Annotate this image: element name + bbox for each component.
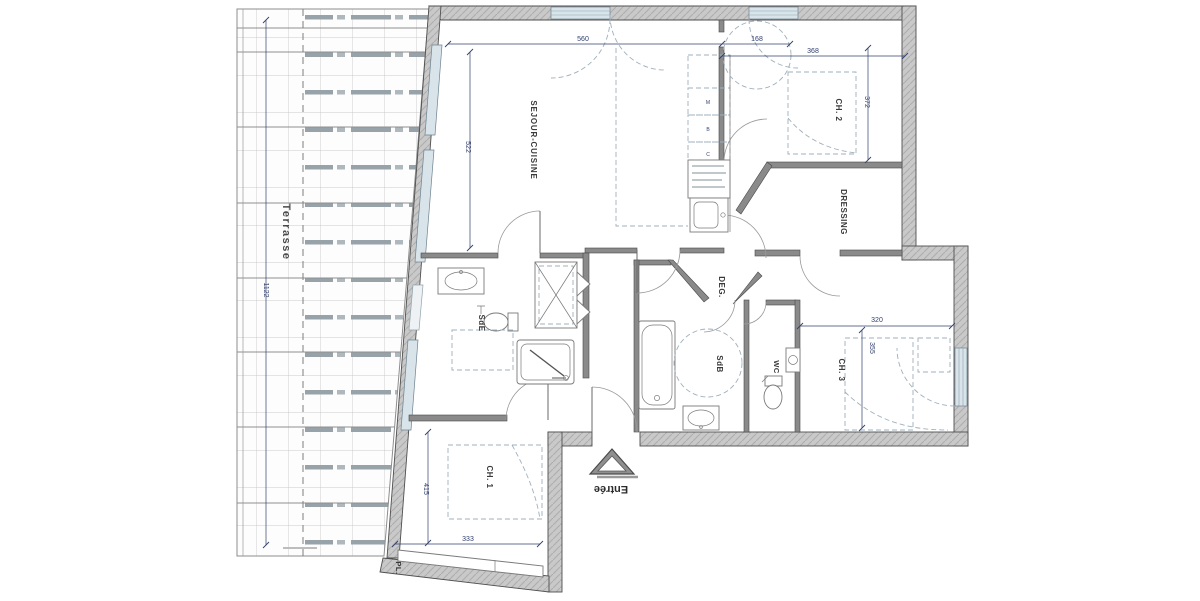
kitchen-mark-1: M [706, 100, 710, 106]
wc-label: WC [772, 360, 781, 374]
wc-tank [765, 376, 782, 386]
sde-wc-bowl [484, 313, 508, 331]
dim-522: 522 [464, 141, 471, 153]
floor-plan-drawing: Terrasse 1122 [0, 0, 1200, 601]
dim-560: 560 [577, 36, 589, 43]
terrasse-height-dim: 1122 [262, 282, 269, 297]
kitchen-mark-3: C [706, 152, 710, 158]
dim-355: 355 [868, 342, 875, 354]
sejour-label: SEJOUR-CUISINE [529, 100, 538, 179]
exterior-walls [380, 6, 968, 592]
ch3-window [955, 348, 967, 406]
sde-label: SdE [477, 314, 486, 331]
ch2-turning-circle [723, 21, 791, 89]
ch3-window-swing [897, 348, 955, 406]
wall-ch1-right [548, 432, 562, 592]
sejour-window-swing-2 [610, 15, 665, 70]
dim-368: 368 [807, 48, 819, 55]
sdb-turning-circle [674, 329, 742, 397]
terrasse-label: Terrasse [280, 203, 292, 260]
bathtub [639, 321, 675, 409]
dim-415: 415 [422, 483, 429, 495]
kitchen-fixtures: M B C [616, 48, 730, 232]
dressing-label: DRESSING [839, 189, 848, 235]
floor-plan-page: Terrasse 1122 [0, 0, 1200, 601]
ch1-label: CH. 1 [485, 466, 494, 489]
sde-fixtures [438, 262, 590, 384]
sdb-fixtures [639, 321, 742, 430]
entry-door-swing [592, 387, 637, 432]
wall-right-upper [902, 6, 916, 260]
dim-320: 320 [871, 317, 883, 324]
wall-top [429, 6, 916, 20]
ch1-bed [448, 445, 542, 519]
dim-168: 168 [751, 36, 763, 43]
sejour-window-swing [551, 19, 610, 78]
pl-label: PL. [394, 561, 403, 574]
sejour-dashed-zone [616, 48, 688, 226]
ch3-door-swing [800, 256, 840, 296]
sde-tap-symbol [477, 306, 485, 314]
deg-label: DEG. [717, 276, 726, 298]
ch2-window [749, 7, 798, 19]
ch2-label: CH. 2 [834, 99, 843, 122]
ch2-bed [788, 72, 856, 154]
dim-372: 372 [863, 96, 870, 108]
wc-fixtures [762, 348, 800, 409]
sde-dashed-zone [452, 330, 513, 370]
sdb-label: SdB [715, 355, 724, 373]
terrace-note-mark [283, 547, 317, 549]
room-labels: SEJOUR-CUISINE CH. 2 DRESSING DEG. SdE S… [394, 99, 848, 575]
sde-door-swing [498, 211, 540, 253]
deg-door-swing [637, 250, 680, 293]
sdb-door-swing [704, 300, 735, 332]
wc-handbasin [786, 348, 800, 372]
wall-bottom-right [640, 432, 968, 446]
kitchen-mark-2: B [706, 127, 710, 133]
ch3-nightstand [918, 338, 950, 372]
entree-label: Entrée [594, 483, 628, 495]
dim-333: 333 [462, 536, 474, 543]
wall-right-lower [954, 246, 968, 446]
sejour-window [551, 7, 610, 19]
wc-bowl [764, 385, 782, 409]
entry-marker: Entrée [590, 449, 638, 495]
sdb-washbasin [683, 406, 719, 430]
sde-wc-tank [508, 313, 518, 331]
ch3-label: CH. 3 [837, 359, 846, 382]
